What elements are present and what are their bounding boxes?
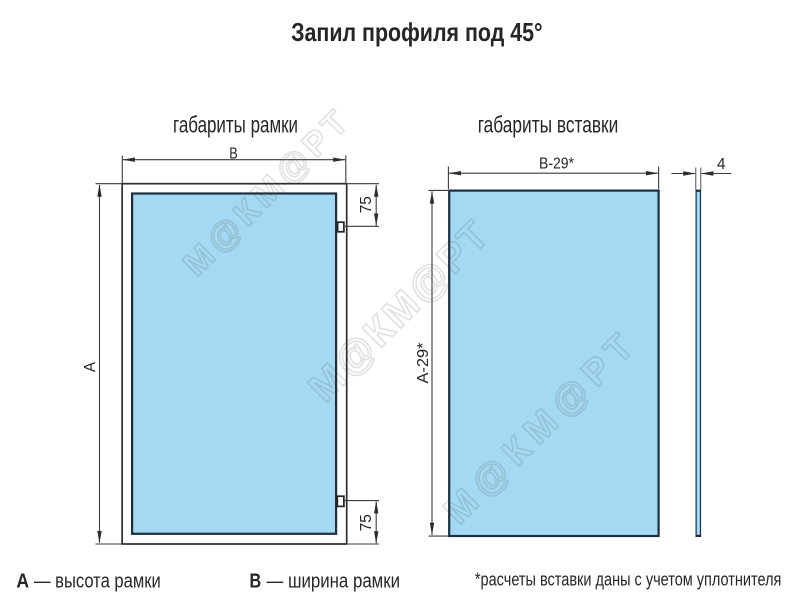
svg-text:габариты рамки: габариты рамки [173, 112, 298, 138]
svg-text:— высота рамки: — высота рамки [34, 570, 161, 592]
svg-text:Запил профиля под 45°: Запил профиля под 45° [291, 17, 543, 47]
svg-text:B: B [229, 145, 238, 162]
svg-text:габариты вставки: габариты вставки [478, 112, 619, 138]
svg-text:B: B [250, 570, 262, 592]
svg-text:B-29*: B-29* [539, 156, 574, 173]
svg-text:75: 75 [358, 196, 375, 213]
svg-text:A: A [82, 361, 99, 372]
svg-text:*расчеты вставки даны с учетом: *расчеты вставки даны с учетом уплотните… [475, 569, 782, 590]
svg-text:4: 4 [717, 156, 726, 173]
svg-text:A: A [16, 570, 29, 592]
svg-text:A-29*: A-29* [415, 342, 432, 383]
svg-text:— ширина рамки: — ширина рамки [267, 570, 401, 592]
svg-text:75: 75 [358, 514, 375, 531]
